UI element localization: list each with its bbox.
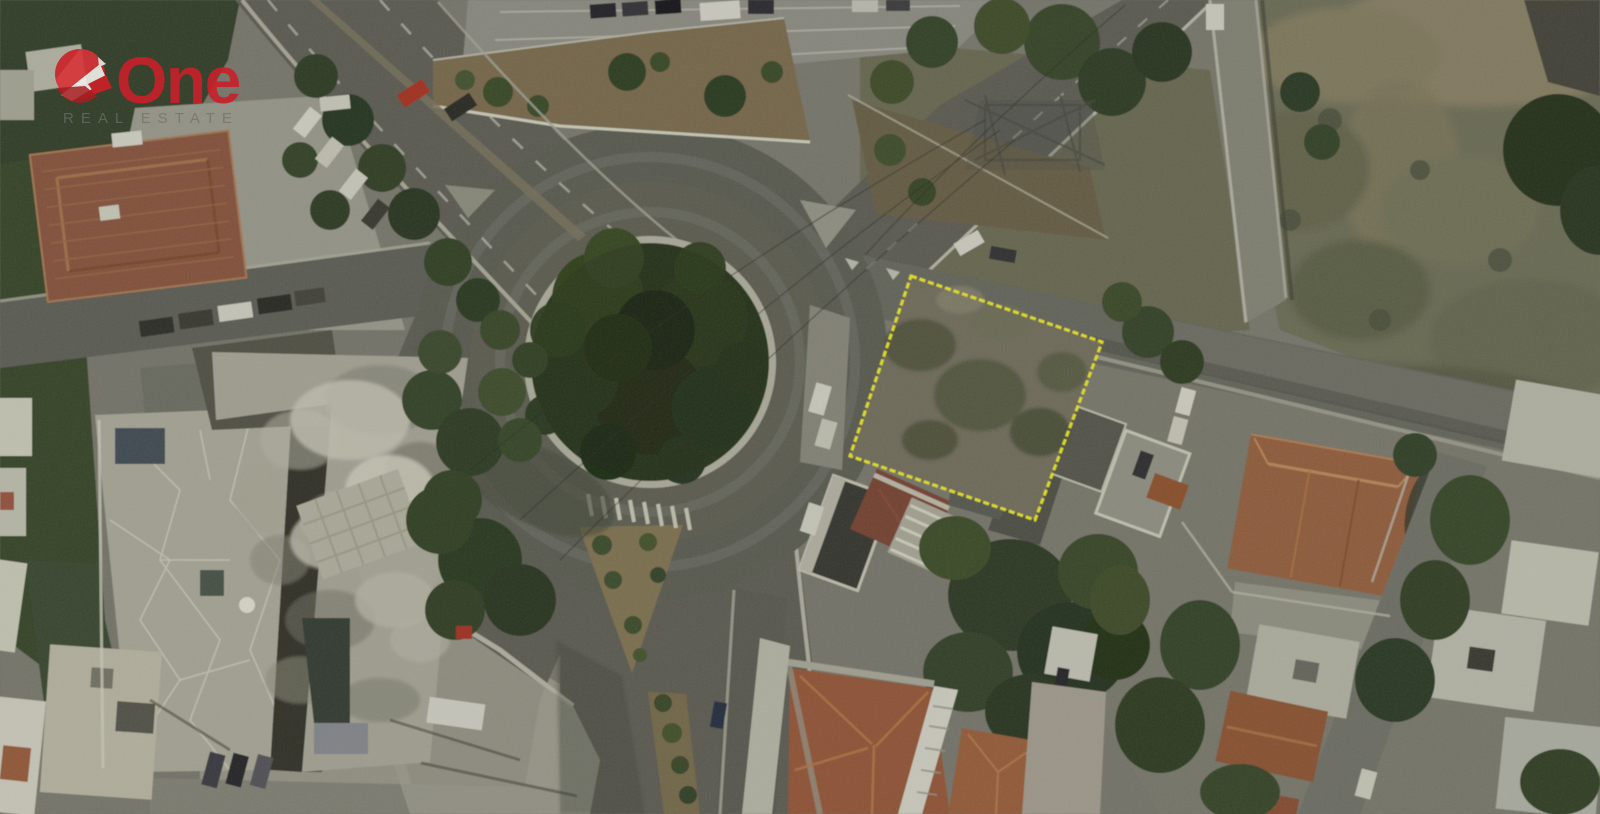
svg-text:One: One (116, 43, 240, 117)
svg-text:REAL ESTATE: REAL ESTATE (63, 110, 239, 127)
